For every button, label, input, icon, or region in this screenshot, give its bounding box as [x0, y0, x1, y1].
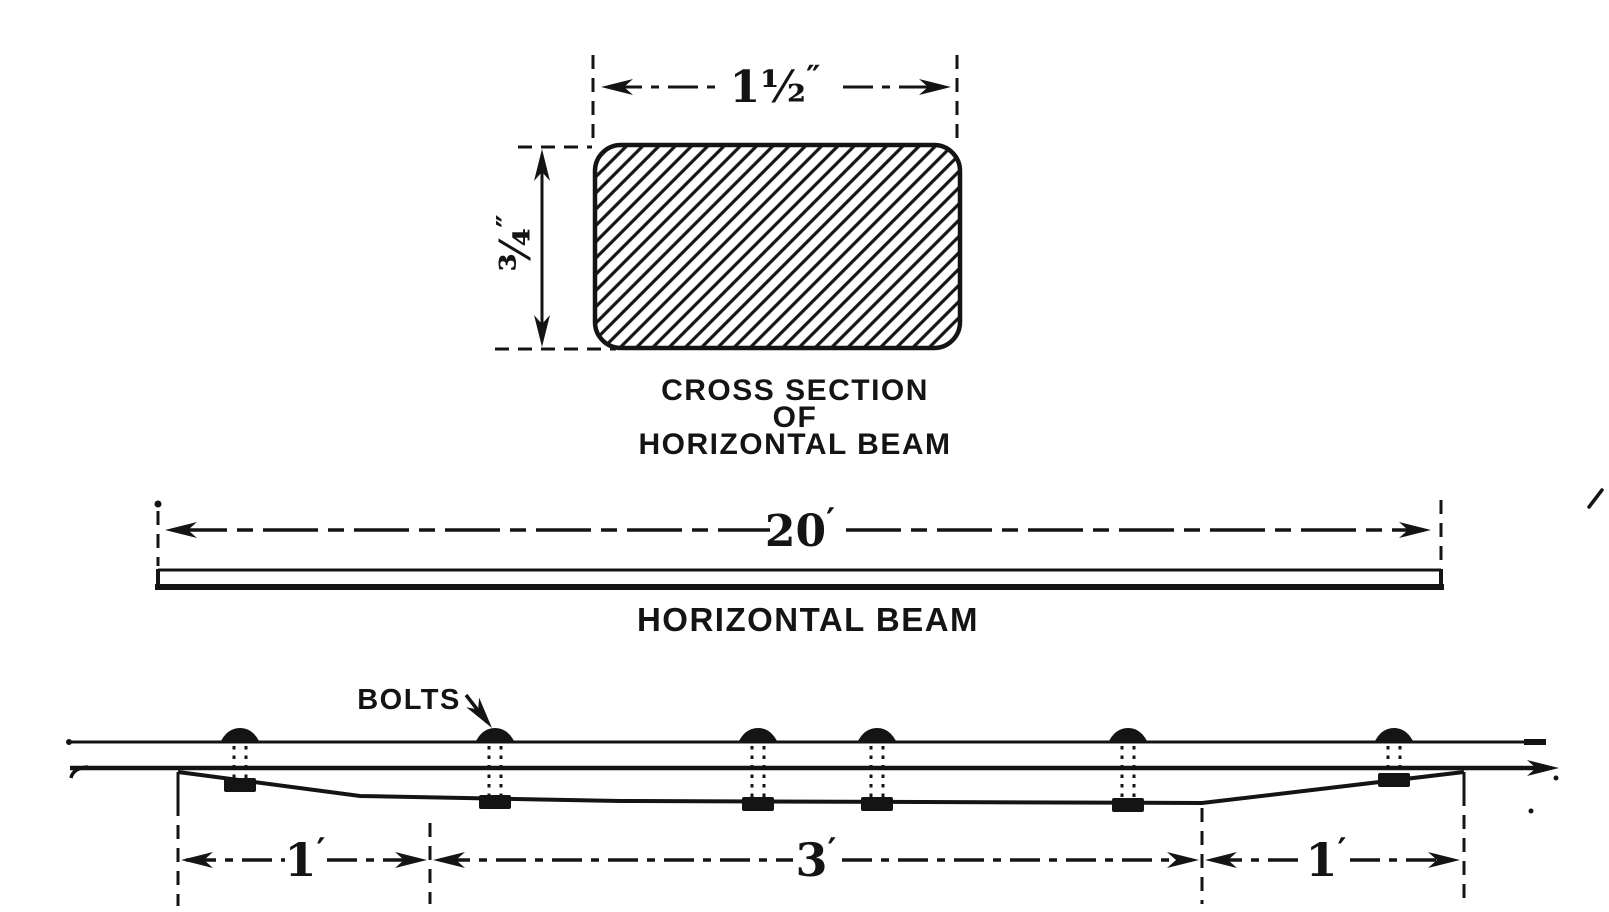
cross-section-caption-line3: HORIZONTAL BEAM	[638, 428, 951, 461]
drawing-sheet: 1½″ ¾″ CROSS SECTION OF HORIZONTAL BEAM …	[0, 0, 1609, 912]
beam-caption: HORIZONTAL BEAM	[637, 601, 979, 638]
svg-text:¾″: ¾″	[491, 214, 540, 271]
bolt-nut	[224, 778, 256, 792]
bolt-nut	[479, 795, 511, 809]
horizontal-beam-view: 20′ HORIZONTAL BEAM	[155, 490, 1603, 638]
bolt-head	[475, 728, 515, 743]
bolt-head	[857, 728, 897, 743]
bolt-nut	[1112, 798, 1144, 812]
bolt-head	[738, 728, 778, 743]
bolt-head	[1374, 728, 1414, 743]
cross-section-view: 1½″ ¾″ CROSS SECTION OF HORIZONTAL BEAM	[491, 55, 960, 461]
width-dimension-label: 1½″	[730, 58, 821, 113]
bolt-head	[220, 728, 260, 743]
bolt-head	[1108, 728, 1148, 743]
spacing-dim-left: 1′	[285, 831, 326, 887]
bolt-nut	[861, 797, 893, 811]
bolt-nut	[1378, 773, 1410, 787]
ink-speck	[1554, 776, 1559, 781]
bolted-beam-view: BOLTS 1′ 3′ 1′	[66, 684, 1559, 906]
bolt	[1374, 728, 1414, 787]
ink-speck	[1529, 809, 1534, 814]
height-dimension-label: ¾″	[491, 214, 540, 271]
arrowhead	[1167, 852, 1199, 868]
length-dimension-label: 20′	[765, 501, 835, 557]
ink-dot	[155, 501, 162, 508]
bent-plank-outline	[178, 772, 1464, 803]
bolts-label: BOLTS	[357, 684, 461, 716]
beam-cross-section-hatched	[595, 145, 960, 348]
spacing-dim-right: 1′	[1306, 831, 1347, 887]
bolt	[220, 728, 260, 792]
bolt-nut	[742, 797, 774, 811]
spacing-dim-middle: 3′	[796, 831, 837, 887]
stray-tick-mark	[1589, 490, 1602, 507]
technical-diagram: 1½″ ¾″ CROSS SECTION OF HORIZONTAL BEAM …	[0, 0, 1609, 912]
